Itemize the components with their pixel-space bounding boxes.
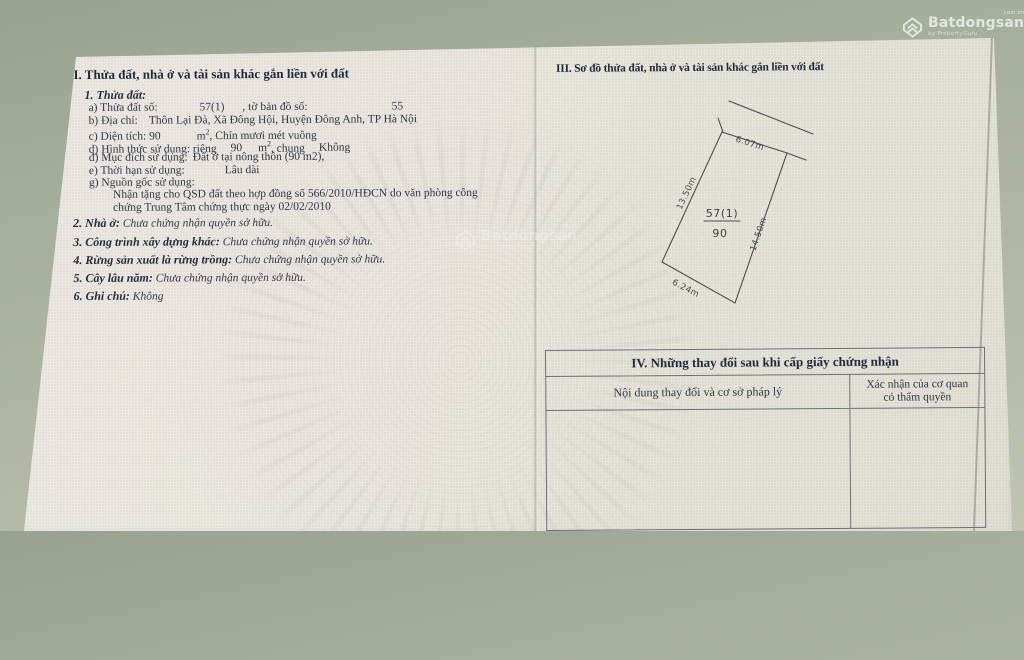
house-value: Chưa chứng nhận quyền sở hữu.	[123, 217, 273, 230]
table-body-confirmation-cell	[850, 408, 986, 529]
construction-row: 3. Công trình xây dựng khác: Chưa chứng …	[73, 234, 373, 249]
construction-label: 3. Công trình xây dựng khác:	[73, 234, 220, 249]
watermark-byline: by PropertyGuru	[928, 31, 1024, 37]
perennial-row: 5. Cây lâu năm: Chưa chứng nhận quyền sở…	[73, 271, 305, 286]
section-4-title: IV. Những thay đổi sau khi cấp giấy chứn…	[545, 347, 985, 377]
watermark-text: .com.vn Batdongsan by PropertyGuru	[481, 228, 577, 250]
watermark-brand: Batdongsan	[481, 228, 577, 244]
use-purpose-value: Đất ở tại nông thôn (90 m2),	[193, 151, 325, 164]
certificate-paper: II. Thửa đất, nhà ở và tài sản khác gắn …	[0, 0, 1024, 531]
subsection-1-label: 1. Thửa đất:	[84, 89, 146, 102]
edge-left-dimension: 13.50m	[675, 175, 699, 211]
map-sheet-value: 55	[392, 100, 404, 112]
watermark-top-right: .com.vn Batdongsan by PropertyGuru	[902, 15, 1024, 38]
section-3-heading: III. Sơ đồ thửa đất, nhà ở và tài sản kh…	[556, 61, 824, 75]
section-4-changes-table: IV. Những thay đổi sau khi cấp giấy chứn…	[545, 347, 986, 531]
forest-value: Chưa chứng nhận quyền sở hữu.	[235, 253, 385, 266]
house-row: 2. Nhà ở: Chưa chứng nhận quyền sở hữu.	[73, 216, 273, 231]
corner-tick-line	[718, 118, 723, 132]
section-2-heading: II. Thửa đất, nhà ở và tài sản khác gắn …	[68, 68, 349, 82]
construction-value: Chưa chứng nhận quyền sở hữu.	[223, 235, 373, 248]
address-row: b) Địa chỉ:Thôn Lại Đà, Xã Đông Hội, Huy…	[89, 113, 418, 127]
edge-right-dimension: 14.50m	[749, 216, 770, 252]
address-value: Thôn Lại Đà, Xã Đông Hội, Huyện Đông Anh…	[149, 113, 417, 126]
parcel-area-on-plot: 90	[712, 227, 727, 240]
watermark-brand: Batdongsan	[928, 15, 1024, 31]
house-label: 2. Nhà ở:	[73, 216, 120, 230]
perennial-label: 5. Cây lâu năm:	[73, 271, 152, 285]
use-term-row: e) Thời hạn sử dụng:Lâu dài	[89, 164, 260, 177]
use-purpose-row: đ) Mục đích sử dụng:Đất ở tại nông thôn …	[89, 151, 325, 165]
land-plot-diagram: 6.07m 13.50m 14.50m 6.24m 57(1) 90	[640, 95, 830, 315]
top-edge-extension-line	[787, 153, 806, 160]
origin-text-line2: chứng Trung Tâm chứng thực ngày 02/02/20…	[113, 201, 331, 215]
use-term-value: Lâu dài	[225, 164, 260, 176]
notes-row: 6. Ghi chú: Không	[74, 290, 164, 304]
address-label: b) Địa chỉ:	[89, 114, 138, 126]
notes-value: Không	[133, 291, 164, 303]
batdongsan-logo-icon	[455, 230, 476, 251]
map-sheet-label: , tờ bản đồ số:	[242, 101, 307, 113]
use-term-label: e) Thời hạn sử dụng:	[89, 164, 185, 177]
road-boundary-line	[729, 101, 813, 134]
perennial-value: Chưa chứng nhận quyền sở hữu.	[156, 272, 306, 285]
batdongsan-logo-icon	[902, 17, 923, 38]
edge-top-dimension: 6.07m	[734, 135, 765, 154]
watermark-domain: .com.vn	[555, 223, 577, 229]
section-2-land-parcel: II. Thửa đất, nhà ở và tài sản khác gắn …	[0, 0, 540, 1]
watermark-center: .com.vn Batdongsan by PropertyGuru	[455, 228, 577, 251]
table-header-confirmation-column: Xác nhận của cơ quancó thẩm quyền	[850, 374, 985, 409]
forest-row: 4. Rừng sản xuất là rừng trồng: Chưa chứ…	[73, 252, 385, 267]
notes-label: 6. Ghi chú:	[74, 289, 130, 303]
parcel-number-on-plot: 57(1)	[706, 207, 739, 220]
table-header-content-column: Nội dung thay đổi và cơ sở pháp lý	[545, 375, 850, 411]
use-purpose-label: đ) Mục đích sử dụng:	[89, 151, 188, 164]
parcel-number-value: 57(1)	[199, 101, 224, 113]
parcel-number-label: a) Thửa đất số:	[89, 102, 158, 114]
origin-label: g) Nguồn gốc sử dụng:	[89, 176, 195, 189]
watermark-byline: by PropertyGuru	[481, 244, 577, 250]
paper-fold-crease	[533, 40, 539, 531]
origin-text-line1: Nhận tặng cho QSD đất theo hợp đồng số 5…	[113, 187, 478, 201]
table-body-content-cell	[545, 409, 851, 531]
watermark-text: .com.vn Batdongsan by PropertyGuru	[928, 15, 1024, 37]
forest-label: 4. Rừng sản xuất là rừng trồng:	[73, 252, 232, 267]
watermark-domain: .com.vn	[1002, 10, 1024, 16]
